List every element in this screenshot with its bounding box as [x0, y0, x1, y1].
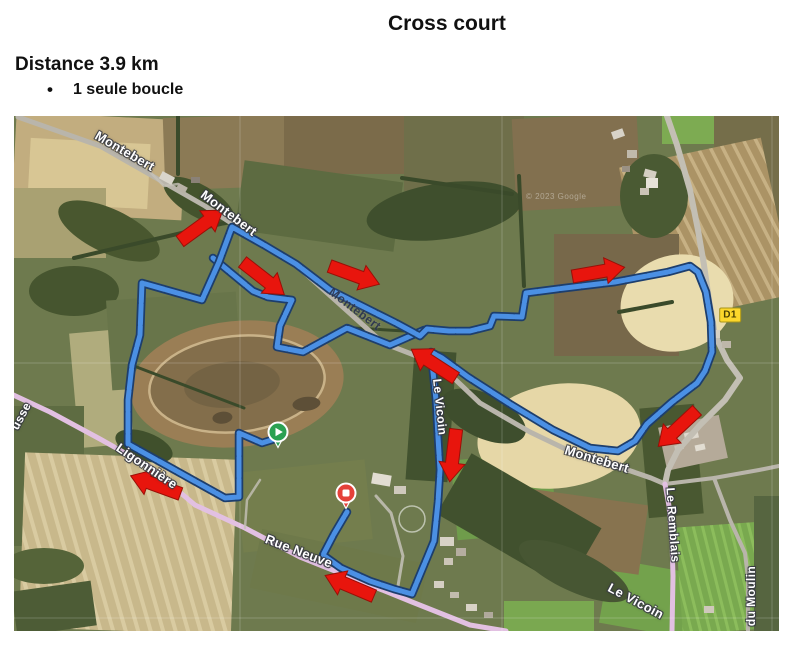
distance-label: Distance 3.9 km	[15, 54, 159, 76]
bullet-dot: •	[47, 80, 53, 100]
route-line	[128, 227, 712, 594]
finish-marker	[337, 484, 356, 509]
course-markers	[269, 423, 356, 509]
page-title: Cross court	[388, 12, 506, 36]
bullet-text: 1 seule boucle	[73, 81, 183, 99]
map-attribution: © 2023 Google	[526, 192, 586, 201]
course-map: MontebertMontebertMontebertMontebertLe V…	[14, 116, 779, 631]
bullet-item: • 1 seule boucle	[47, 80, 183, 100]
route-overlay	[14, 116, 779, 631]
